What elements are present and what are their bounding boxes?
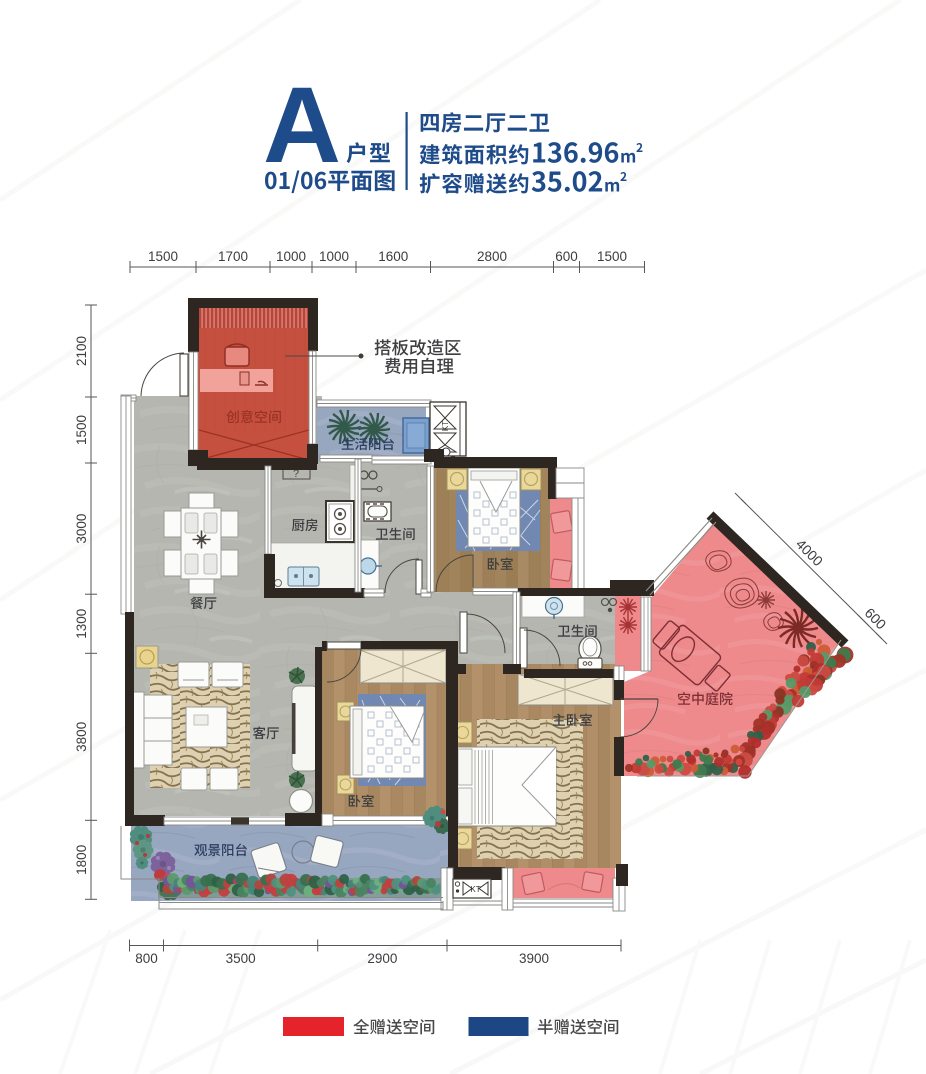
svg-text:3800: 3800 bbox=[74, 722, 89, 752]
svg-text:800: 800 bbox=[135, 951, 158, 966]
svg-text:1000: 1000 bbox=[276, 249, 306, 264]
svg-text:1500: 1500 bbox=[74, 415, 89, 445]
svg-text:A: A bbox=[263, 64, 341, 185]
svg-text:1600: 1600 bbox=[378, 249, 408, 264]
svg-text:1000: 1000 bbox=[319, 249, 349, 264]
svg-text:1800: 1800 bbox=[74, 845, 89, 875]
svg-text:600: 600 bbox=[555, 249, 578, 264]
svg-text:3000: 3000 bbox=[74, 514, 89, 544]
svg-text:1300: 1300 bbox=[74, 609, 89, 639]
svg-text:KT: KT bbox=[441, 421, 450, 431]
svg-text:2100: 2100 bbox=[74, 336, 89, 366]
svg-text:2800: 2800 bbox=[477, 249, 507, 264]
svg-text:1500: 1500 bbox=[148, 249, 178, 264]
svg-text:2900: 2900 bbox=[367, 951, 397, 966]
svg-text:3500: 3500 bbox=[226, 951, 256, 966]
svg-text:1500: 1500 bbox=[597, 249, 627, 264]
svg-text:3900: 3900 bbox=[519, 951, 549, 966]
svg-text:1700: 1700 bbox=[218, 249, 248, 264]
svg-text:KT: KT bbox=[470, 885, 480, 894]
